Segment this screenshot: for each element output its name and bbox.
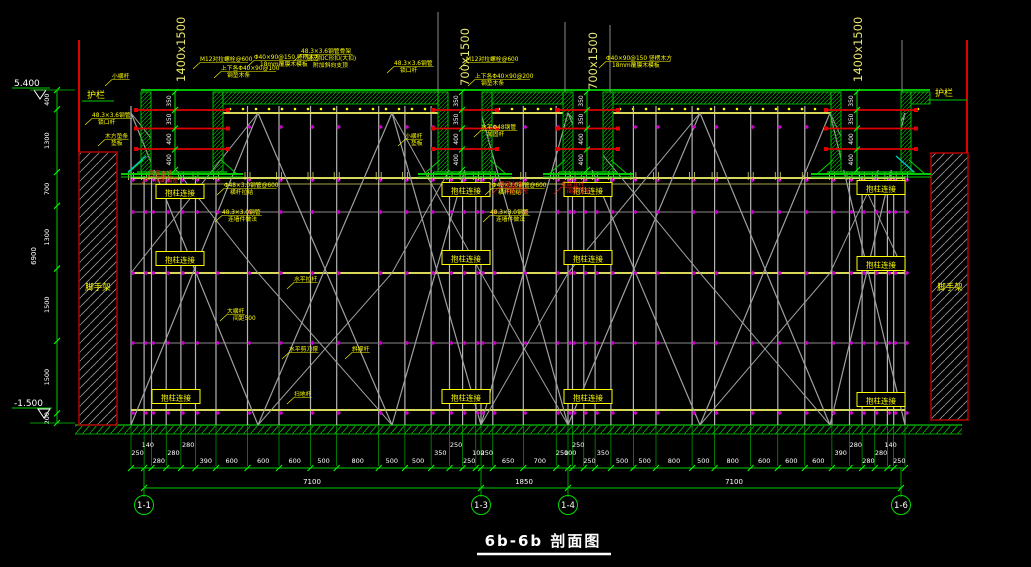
tie-bolt-nut [226,108,230,112]
beam-dim-label: 400 [453,133,460,145]
generated-geometry: 3503504004003503504004003503504004003503… [12,12,968,497]
column-tie-label: 抱柱连接 [451,393,481,403]
annotation-leader [483,216,490,223]
dimension-label: 250 [572,441,584,449]
left-dim-total: 6900 [30,247,38,265]
dimension-label: 500 [412,457,424,465]
column-tie-label: 抱柱连接 [165,255,195,265]
annotation-label: 横杆拉结 [230,188,253,196]
joist-dot [537,108,540,111]
annotation-label: 上下各Φ40×90@200 [475,72,534,80]
joist-dot [242,108,245,111]
tie-bolt-nut [914,147,918,151]
beam-size-label-2: 700x1500 [458,28,472,86]
tie-bolt-nut [824,127,828,131]
tie-bolt-nut [914,108,918,112]
annotation-label: 间距500 [233,314,256,322]
column-tie-label: 抱柱连接 [866,396,896,406]
annotation-label: 间距加密 [567,187,590,195]
tie-bolt-nut [616,108,620,112]
annotation-label: 梁底立杆 [561,180,584,188]
annotation-leader [599,62,606,69]
annotation-label: 小横杆 [405,132,423,140]
annotation-label: 水平拉杆 [294,275,317,283]
dimension-label: 600 [289,457,301,465]
dimension-label: 700 [534,457,546,465]
dimension-label: 250 [463,457,475,465]
dim-total-label: 1850 [515,478,533,486]
dimension-label: 280 [862,457,874,465]
dimension-label: 600 [812,457,824,465]
dimension-label: 800 [726,457,738,465]
beam-dim-label: 350 [166,113,173,125]
annotation-label: 锁口杆 [400,66,418,74]
dimension-label: 280 [182,441,194,449]
beam-dim-label: 350 [848,95,855,107]
annotation-label: 连墙件做法 [496,215,525,223]
beam-dim-label: 350 [578,113,585,125]
tie-bolt-nut [226,127,230,131]
annotation-label: 小横杆 [112,72,130,80]
axis-bubble-label: 1-6 [894,501,908,511]
tie-bolt-nut [226,147,230,151]
joist-dot [333,108,336,111]
joist-dot [710,108,713,111]
annotation-label: 垫板 [111,139,123,147]
beam-dim-label: 400 [578,154,585,166]
slab-deck [613,92,831,104]
annotation-label: 48.3×3.0钢管 [490,208,529,216]
beam-dim-label: 350 [453,113,460,125]
dimension-label: 600 [226,457,238,465]
slab-deck [223,92,438,104]
annotation-leader [287,398,294,405]
dimension-label: 600 [758,457,770,465]
slab-deck [911,92,930,104]
column-tie-label: 抱柱连接 [451,186,481,196]
beam-size-label-4: 1400x1500 [851,17,865,82]
dimension-label: 280 [167,449,179,457]
annotation-label: Φ40×90@150 竖楞木方 [606,54,672,62]
dimension-label: 390 [200,457,212,465]
dimension-label: 500 [697,457,709,465]
joist-dot [372,108,375,111]
annotation-label: 锁口杆 [98,118,116,126]
annotation-label: 连墙件做法 [228,215,257,223]
left-dim-label: 1300 [43,132,51,149]
annotation-label: M12对拉螺栓@600 [466,55,519,63]
dimension-label: 350 [597,449,609,457]
annotation-label: M12对拉螺栓@600 [200,55,253,63]
joist-dot [398,108,401,111]
joist-dot [658,108,661,111]
annotation-label: 48.3×3.6钢管 [92,111,131,119]
annotation-label: 梁底立杆 [499,180,522,188]
beam-dim-label: 400 [848,133,855,145]
joist-dot [723,108,726,111]
tie-bolt-nut [134,147,138,151]
annotation-label: 加固杆 [487,130,505,138]
annotation-label: 垫板 [411,139,423,147]
cad-canvas: 3503504004003503504004003503504004003503… [0,0,1031,567]
beam-dim-label: 350 [453,95,460,107]
guardrail-label-left: 护栏 [87,89,105,101]
dimension-label: 800 [668,457,680,465]
dimension-label: 390 [835,449,847,457]
annotation-label: 梁底立杆 [149,169,172,177]
joist-dot [320,108,323,111]
annotation-label: 间距加密 [155,176,178,184]
joist-dot [645,108,648,111]
annotation-label: 48.3×3.6钢管骨架 [301,47,351,55]
joist-dot [671,108,674,111]
annotation-leader [345,353,352,360]
beam-interior [151,92,213,170]
dimension-label: 600 [785,457,797,465]
tie-bolt-nut [134,108,138,112]
joist-dot [424,108,427,111]
dimension-label: 250 [450,441,462,449]
joist-dot [788,108,791,111]
beam-dim-label: 400 [166,154,173,166]
dimension-label: 500 [616,457,628,465]
tie-bolt-nut [556,127,560,131]
joist-dot [775,108,778,111]
axis-bubble-label: 1-3 [474,501,488,511]
tie-bolt-nut [616,147,620,151]
tie-bolt-nut [616,127,620,131]
beam-dim-label: 350 [578,95,585,107]
annotation-label: 扫地杆 [294,390,312,398]
joist-dot [814,108,817,111]
annotation-label: 水平剪刀撑 [289,345,318,353]
joist-dot [294,108,297,111]
left-dim-label: 1300 [43,229,51,246]
joist-dot [762,108,765,111]
dimension-label: 800 [351,457,363,465]
dimension-label: 280 [875,449,887,457]
axis-bubble-1-4: 1-4 [559,496,578,515]
dimension-label: 140 [142,441,154,449]
tie-bolt-nut [556,108,560,112]
dimension-label: 600 [257,457,269,465]
dim-total-label: 7100 [725,478,743,486]
beam-size-label-1: 1400x1500 [174,17,188,82]
axis-bubble-1-6: 1-6 [892,496,911,515]
dimension-label: 280 [153,457,165,465]
annotation-label: Φ48×3.0钢管@600 [224,181,279,189]
annotation-label: 18mm覆膜木模板 [612,61,660,69]
beam-dim-label: 400 [453,154,460,166]
tie-bolt-nut [495,147,499,151]
column-tie-label: 抱柱连接 [161,393,191,403]
ground-hatch [75,426,962,434]
joist-dot [255,108,258,111]
column-tie-label: 抱柱连接 [451,254,481,264]
left-dim-label: 700 [43,183,51,195]
annotation-leader [387,67,394,74]
joist-dot [736,108,739,111]
annotation-leader [220,315,227,322]
annotation-label: 钢垫木条 [227,71,250,79]
tie-bolt-nut [134,127,138,131]
dimension-label: 140 [884,441,896,449]
dimension-label: 250 [131,449,143,457]
dimension-label: 650 [502,457,514,465]
dimension-label: 500 [386,457,398,465]
dimension-label: 280 [850,441,862,449]
column-tie-label: 抱柱连接 [573,393,603,403]
annotation-label: 水平Φ48钢管 [481,123,516,131]
annotation-leader [214,72,221,79]
annotation-leader [85,119,92,126]
annotation-label: 18mm覆膜木模板 [260,60,308,68]
joist-dot [411,108,414,111]
joist-dot [385,108,388,111]
beam-size-label-3: 700x1500 [586,32,600,90]
tie-bolt-nut [824,108,828,112]
beam-dim-label: 400 [578,133,585,145]
annotation-label: 48.3×3.0钢管 [222,208,261,216]
beam-dim-label: 350 [166,95,173,107]
annotation-label: 附加斜向支顶 [313,61,348,69]
drawing-title: 6b-6b 剖面图 [485,532,602,550]
left-dim-label: 1500 [43,369,51,386]
annotation-label: 钢垫木条 [481,79,504,87]
annotation-leader [193,63,200,70]
annotation-leader [287,283,294,290]
annotation-label: 斜撑杆 [352,345,370,353]
joist-dot [684,108,687,111]
dimension-label: 250 [481,449,493,457]
joist-dot [511,108,514,111]
column-tie-label: 抱柱连接 [866,184,896,194]
tie-bolt-nut [431,127,435,131]
column-tie-label: 抱柱连接 [165,188,195,198]
tie-bolt-nut [495,108,499,112]
joist-dot [268,108,271,111]
annotation-leader [98,140,105,147]
joist-dot [359,108,362,111]
axis-bubble-label: 1-4 [561,501,575,511]
dimension-label: 500 [638,457,650,465]
scaffold-wall-label-left: 脚手架 [85,282,111,293]
annotation-label: 间距加密 [505,187,528,195]
joist-dot [307,108,310,111]
slab-deck [492,92,563,104]
section-drawing: 3503504004003503504004003503504004003503… [0,0,1031,567]
tie-bolt-nut [556,147,560,151]
tie-bolt-nut [824,147,828,151]
annotation-label: 大横杆 [227,307,245,315]
elevation-bottom-label: -1.500 [14,399,43,409]
tie-bolt-nut [431,108,435,112]
scaffold-wall-label-right: 脚手架 [937,282,963,293]
tie-bolt-nut [431,147,435,151]
elevation-top-label: 5.400 [14,79,40,89]
dimension-label: 250 [583,457,595,465]
dimension-label: 250 [893,457,905,465]
joist-dot [697,108,700,111]
axis-bubble-1-3: 1-3 [472,496,491,515]
beam-dim-label: 350 [848,113,855,125]
beam-dim-label: 400 [166,133,173,145]
joist-dot [801,108,804,111]
dimension-label: 500 [317,457,329,465]
joist-dot [524,108,527,111]
annotation-leader [554,188,561,195]
joist-dot [550,108,553,111]
beam-dim-label: 400 [848,154,855,166]
joist-dot [281,108,284,111]
guardrail-label-right: 护栏 [935,87,953,99]
tie-bolt-nut [914,127,918,131]
annotation-label: 木方垫条 [105,132,128,140]
left-dim-label: 1500 [43,296,51,313]
axis-bubble-label: 1-1 [137,501,151,511]
left-dim-label: 400 [43,93,51,105]
annotation-label: 48.3×3.6钢管 [394,59,433,67]
column-tie-label: 抱柱连接 [866,260,896,270]
dim-total-label: 7100 [303,478,321,486]
annotation-label: 骑马扣C形扣(大扣) [307,54,356,62]
joist-dot [346,108,349,111]
dimension-label: 100 [564,449,576,457]
annotation-leader [217,189,224,196]
annotation-leader [105,80,112,87]
column-tie-label: 抱柱连接 [573,254,603,264]
axis-bubble-1-1: 1-1 [135,496,154,515]
dimension-label: 350 [434,449,446,457]
